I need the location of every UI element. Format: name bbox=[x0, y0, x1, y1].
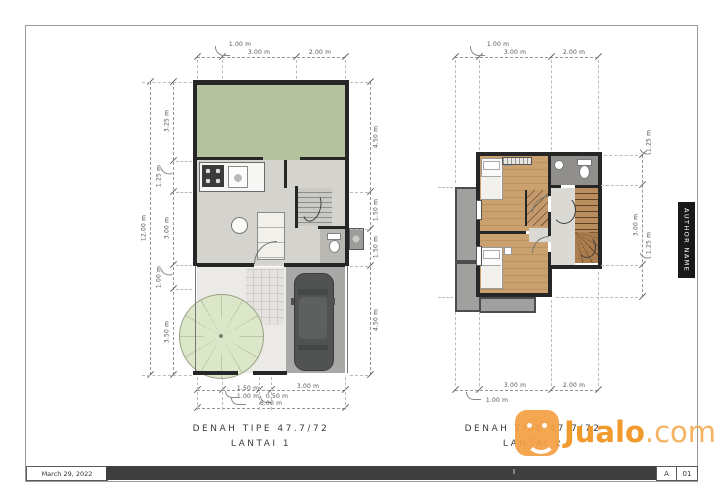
wall bbox=[284, 263, 345, 267]
dim-label: 3.00 m bbox=[633, 214, 640, 236]
car-roof bbox=[299, 297, 327, 339]
nightstand bbox=[504, 247, 512, 255]
outdoor-unit bbox=[349, 228, 364, 250]
watermark: Jualo.com bbox=[512, 406, 712, 462]
extension-line bbox=[350, 82, 368, 83]
wall bbox=[345, 80, 349, 266]
dim-label: 2.00 m bbox=[563, 382, 585, 389]
revision-cell: A bbox=[656, 466, 677, 481]
logo-smile-icon bbox=[526, 426, 556, 454]
dim-label: 0.50 m bbox=[266, 393, 288, 400]
bed-blanket bbox=[481, 176, 501, 199]
sink-icon bbox=[228, 166, 248, 188]
extension-line bbox=[142, 375, 192, 376]
car-windshield bbox=[298, 289, 328, 295]
plan1-title-line1: DENAH TIPE 47.7/72 bbox=[193, 424, 330, 434]
garden-area bbox=[197, 84, 345, 160]
extension-line bbox=[438, 187, 453, 188]
toilet-icon bbox=[327, 233, 341, 240]
dim-label: 1.00 m bbox=[486, 397, 508, 404]
dim-label: 3.00 m bbox=[504, 382, 526, 389]
wall bbox=[551, 185, 561, 188]
wall bbox=[300, 157, 349, 160]
toilet-bowl-icon bbox=[329, 240, 340, 253]
extension-line bbox=[479, 312, 480, 386]
wall bbox=[476, 152, 602, 156]
toilet-bowl-icon bbox=[579, 165, 590, 179]
dim-label: 6.00 m bbox=[260, 400, 282, 407]
dimension-line bbox=[173, 82, 174, 375]
extension-line bbox=[142, 82, 192, 83]
extension-line bbox=[438, 297, 453, 298]
extension-line bbox=[345, 60, 346, 79]
extension-line bbox=[455, 60, 456, 183]
extension-line bbox=[197, 377, 198, 410]
watermark-brand: Jualo bbox=[564, 415, 645, 449]
wall bbox=[548, 265, 602, 269]
extension-line bbox=[222, 377, 223, 410]
wall bbox=[295, 186, 298, 228]
dim-label: 1.00 m bbox=[237, 393, 259, 400]
dim-label: 1.50 m bbox=[373, 236, 380, 258]
titlebar-center-mark: I bbox=[513, 468, 515, 476]
wardrobe bbox=[502, 157, 532, 165]
dim-label: 3.00 m bbox=[297, 383, 319, 390]
stair-direction-arrow bbox=[578, 236, 596, 258]
wall bbox=[193, 80, 349, 85]
watermark-text: Jualo.com bbox=[564, 412, 716, 452]
wall bbox=[193, 80, 197, 266]
extension-line bbox=[296, 60, 297, 79]
extension-line bbox=[197, 60, 198, 79]
circle-center-dot bbox=[219, 334, 223, 338]
extension-line bbox=[556, 297, 638, 298]
extension-line bbox=[176, 265, 192, 266]
wall bbox=[193, 371, 238, 375]
round-table bbox=[231, 217, 248, 234]
window bbox=[476, 200, 482, 220]
dim-label: 3.00 m bbox=[504, 49, 526, 56]
extension-line bbox=[176, 192, 192, 193]
extension-line bbox=[350, 375, 368, 376]
wall bbox=[193, 157, 263, 160]
jualo-logo-icon bbox=[515, 410, 559, 456]
wall bbox=[548, 212, 551, 236]
car-rear-window bbox=[298, 345, 328, 350]
extension-line bbox=[176, 161, 192, 162]
wall bbox=[476, 293, 552, 297]
extension-line bbox=[598, 272, 599, 386]
extension-line bbox=[551, 60, 552, 150]
extension-line bbox=[455, 312, 456, 386]
extension-line bbox=[176, 289, 192, 290]
stairs-main bbox=[575, 188, 598, 232]
wall bbox=[253, 371, 287, 375]
boundary-line bbox=[347, 266, 348, 373]
wall bbox=[480, 231, 526, 234]
wall bbox=[197, 263, 254, 267]
date-cell: March 29, 2022 bbox=[26, 466, 108, 481]
bed-pillow bbox=[483, 250, 500, 259]
boundary-line bbox=[195, 266, 196, 373]
wall bbox=[598, 152, 602, 269]
dim-label: 12.00 m bbox=[141, 215, 148, 241]
logo-eye-icon bbox=[527, 423, 532, 428]
dim-label: 3.00 m bbox=[164, 217, 171, 239]
extension-line bbox=[598, 60, 599, 150]
extension-line bbox=[350, 266, 368, 267]
bed-pillow bbox=[483, 161, 500, 170]
dim-label: 1.50 m bbox=[373, 199, 380, 221]
car-mirror-left bbox=[291, 298, 294, 305]
sink-icon bbox=[554, 160, 564, 170]
extension-line bbox=[350, 192, 368, 193]
dim-label: 2.00 m bbox=[563, 49, 585, 56]
dim-label: 4.50 m bbox=[373, 126, 380, 148]
wall bbox=[476, 152, 480, 297]
dim-label: 1.00 m bbox=[487, 41, 509, 48]
sheet-number-cell: 01 bbox=[676, 466, 698, 481]
dimension-line bbox=[150, 82, 151, 375]
dim-label: 3.25 m bbox=[164, 110, 171, 132]
wall bbox=[575, 185, 602, 188]
titlebar bbox=[106, 466, 656, 480]
author-name-badge: AUTHOR NAME bbox=[678, 202, 695, 278]
extension-line bbox=[601, 265, 638, 266]
wall bbox=[284, 160, 287, 188]
extension-line bbox=[350, 229, 368, 230]
dimension-line bbox=[642, 155, 643, 297]
dim-label: 1.50 m bbox=[237, 385, 259, 392]
wall bbox=[548, 252, 551, 293]
wall bbox=[548, 156, 551, 196]
dim-label: 3.50 m bbox=[164, 321, 171, 343]
bed-blanket bbox=[481, 265, 501, 288]
stove-icon bbox=[202, 165, 224, 187]
window bbox=[476, 246, 482, 266]
car-mirror-right bbox=[332, 298, 335, 305]
extension-line bbox=[479, 60, 480, 150]
dim-label: 1.00 m bbox=[229, 41, 251, 48]
dim-label: 4.50 m bbox=[373, 309, 380, 331]
dim-label: 2.00 m bbox=[309, 49, 331, 56]
extension-line bbox=[551, 300, 552, 386]
extension-line bbox=[601, 185, 638, 186]
extension-line bbox=[222, 60, 223, 79]
roof-ledge bbox=[479, 297, 536, 313]
stair-direction-arrow bbox=[552, 196, 576, 224]
watermark-suffix: .com bbox=[645, 415, 716, 449]
extension-line bbox=[345, 377, 346, 410]
dim-label: 3.00 m bbox=[248, 49, 270, 56]
plan1-title-line2: LANTAI 1 bbox=[231, 439, 291, 449]
wall bbox=[525, 190, 527, 226]
extension-line bbox=[604, 155, 638, 156]
drawing-sheet: 1.00 m 3.00 m 2.00 m 12.00 m 3.25 m 1.25… bbox=[0, 0, 720, 495]
